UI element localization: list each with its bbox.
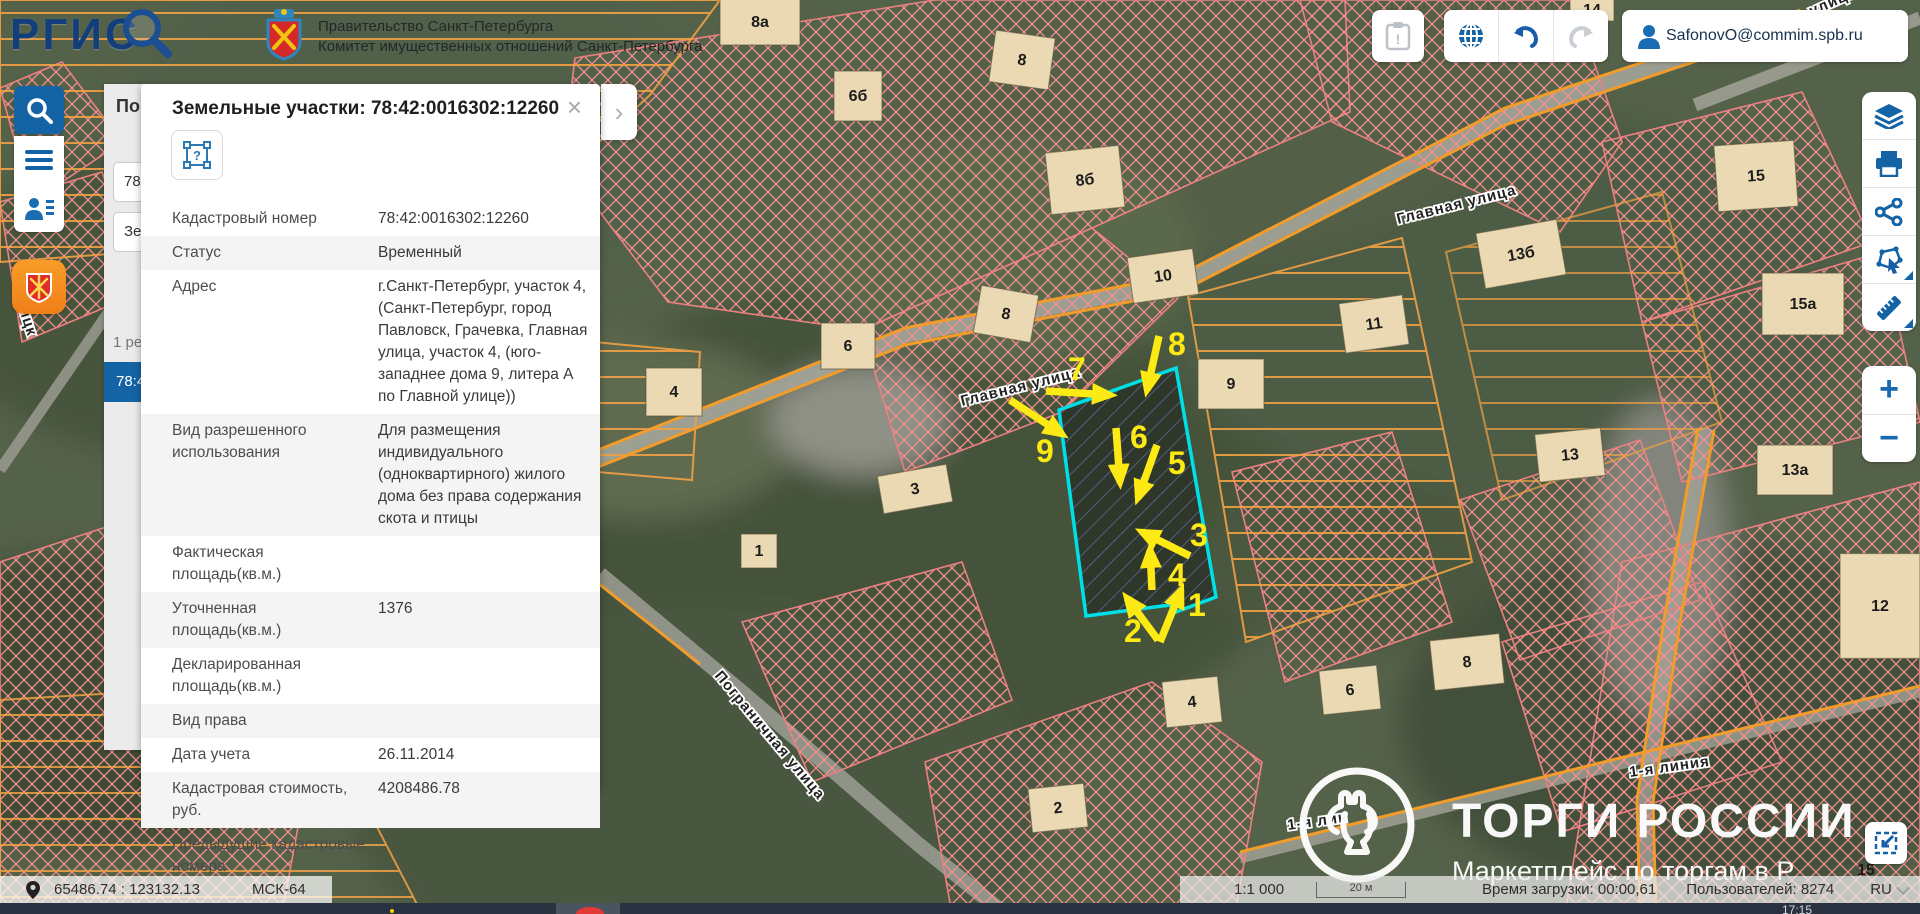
vertex-number-label: 5 — [1168, 445, 1186, 481]
vertex-arrow — [1046, 391, 1110, 395]
search-result-row[interactable]: 78:4 — [104, 362, 144, 402]
printer-icon — [1875, 151, 1903, 177]
language-selector[interactable]: RU — [1870, 881, 1908, 898]
info-row: Кадастровый номер78:42:0016302:12260 — [141, 202, 600, 236]
info-row-label: Декларированная площадь(кв.м.) — [172, 654, 378, 698]
building-number-label: 13а — [1782, 462, 1809, 479]
info-row-value — [378, 542, 590, 586]
info-row: Фактическая площадь(кв.м.) — [141, 536, 600, 592]
vertex-number-label: 2 — [1124, 613, 1142, 649]
undo-arrow-icon — [1511, 23, 1541, 49]
info-row-value: г.Санкт-Петербург, участок 4, (Санкт-Пет… — [378, 276, 590, 408]
info-row-value: 1376 — [378, 598, 590, 642]
search-results-count: 1 ре — [113, 334, 142, 351]
identify-parcel-icon: ? — [183, 141, 211, 169]
zoom-out-button[interactable]: − — [1862, 414, 1916, 463]
zoom-in-button[interactable]: + — [1862, 366, 1916, 414]
spb-emblem-icon — [24, 270, 54, 304]
vertex-number-label: 1 — [1188, 587, 1206, 623]
search-tool-button[interactable] — [14, 86, 64, 134]
info-row-label: Вид разрешенного использования — [172, 420, 378, 530]
info-row: Дата учета26.11.2014 — [141, 738, 600, 772]
torgi-rossii-watermark: ТОРГИ РОССИИ Маркетплейс по торгам в Р — [1294, 762, 1420, 893]
info-row: Адресг.Санкт-Петербург, участок 4, (Санк… — [141, 270, 600, 414]
spb-emblem-button[interactable] — [12, 260, 66, 314]
location-pin-icon — [26, 881, 40, 899]
government-caption: Правительство Санкт-Петербурга Комитет и… — [318, 17, 703, 57]
vertex-number-label: 3 — [1190, 517, 1208, 553]
layers-button[interactable] — [1862, 92, 1916, 139]
info-row: Уточненная площадь(кв.м.)1376 — [141, 592, 600, 648]
os-taskbar: 17:15 — [0, 903, 1920, 914]
vertex-number-label: 4 — [1168, 557, 1186, 593]
building: 15а — [1762, 273, 1844, 335]
building-number-label: 15 — [1747, 167, 1766, 185]
print-button[interactable] — [1862, 139, 1916, 187]
hamburger-icon — [25, 150, 53, 170]
close-icon[interactable]: × — [567, 92, 582, 123]
parcel-attributes-table: Кадастровый номер78:42:0016302:12260Стат… — [141, 202, 600, 884]
globe-icon — [1456, 21, 1486, 51]
panel-header: Земельные участки: 78:42:0016302:12260 × — [141, 84, 600, 130]
building-number-label: 8а — [751, 14, 769, 31]
info-row: СтатусВременный — [141, 236, 600, 270]
load-time: Время загрузки: 00:00,61 — [1482, 881, 1656, 898]
building-number-label: 1 — [755, 543, 764, 560]
building: 11 — [1339, 295, 1409, 353]
vertex-number-label: 9 — [1036, 433, 1054, 469]
info-row-label: Предыдущие кадастровые номера — [172, 834, 378, 878]
building-number-label: 6 — [1345, 682, 1356, 700]
building-number-label: 4 — [670, 384, 679, 401]
building-number-label: 11 — [1365, 315, 1384, 334]
polygon-select-icon — [1874, 246, 1904, 274]
gov-line2: Комитет имущественных отношений Санкт-Пе… — [318, 37, 703, 57]
menu-button[interactable] — [14, 136, 64, 184]
layers-icon — [1874, 103, 1904, 129]
browser-icon — [576, 907, 604, 914]
building: 12 — [1840, 554, 1920, 659]
spb-coat-of-arms — [262, 8, 306, 62]
contacts-button[interactable] — [14, 184, 64, 232]
vertex-arrow — [1150, 550, 1152, 590]
building-number-label: 6 — [844, 338, 853, 355]
parcel-info-panel: Земельные участки: 78:42:0016302:12260 ×… — [141, 84, 600, 790]
taskbar-clock: 17:15 — [1782, 903, 1812, 914]
info-row-value: 26.11.2014 — [378, 744, 590, 766]
info-row-value: 78:42:0016302:12260 — [378, 208, 590, 230]
vertex-number-label: 8 — [1168, 326, 1186, 362]
info-row-label: Статус — [172, 242, 378, 264]
info-row-value — [378, 654, 590, 698]
submenu-triangle — [1904, 271, 1913, 280]
panel-title: Земельные участки: 78:42:0016302:12260 — [172, 98, 559, 120]
building: 9 — [1198, 359, 1264, 409]
globe-button[interactable] — [1444, 10, 1498, 62]
building: 10 — [1127, 249, 1199, 304]
building-number-label: 13 — [1560, 446, 1580, 465]
chevron-down-icon — [1896, 880, 1910, 894]
measure-button[interactable] — [1862, 283, 1916, 331]
building-number-label: 2 — [1053, 800, 1064, 818]
undo-button[interactable] — [1498, 10, 1553, 62]
building: 15 — [1714, 140, 1798, 211]
info-row-value — [378, 710, 590, 732]
info-row-value: Временный — [378, 242, 590, 264]
app-window: 8а86б8б108649311113б1515а1313а1286421415… — [0, 0, 1920, 914]
watermark-title: ТОРГИ РОССИИ — [1452, 794, 1856, 849]
vertex-number-label: 7 — [1068, 351, 1086, 387]
building-number-label: 9 — [1227, 376, 1236, 393]
info-row-value: 4208486.78 — [378, 778, 590, 822]
user-email: SafonovO@commim.spb.ru — [1666, 27, 1863, 45]
building-number-label: 6б — [849, 88, 868, 105]
clipboard-icon: ! — [1385, 21, 1411, 51]
vertex-number-label: 6 — [1130, 419, 1148, 455]
full-extent-button[interactable] — [1865, 822, 1907, 864]
building: 4 — [1162, 676, 1223, 728]
building: 6б — [834, 71, 882, 121]
building: 8б — [1045, 145, 1125, 214]
building: 8 — [1430, 633, 1505, 690]
layer-select-input[interactable]: Зе — [113, 212, 144, 252]
identify-tool-button[interactable]: ? — [171, 130, 223, 180]
share-icon — [1875, 198, 1903, 226]
map-tools-group — [1862, 92, 1916, 331]
building-number-label: 15а — [1790, 296, 1817, 313]
expand-arrow-icon — [1874, 831, 1898, 855]
info-row-label: Кадастровая стоимость, руб. — [172, 778, 378, 822]
vertex-arrow — [1116, 428, 1120, 482]
building: 4 — [646, 368, 702, 416]
svg-text:!: ! — [1396, 31, 1401, 47]
info-row-label: Дата учета — [172, 744, 378, 766]
info-row-label: Фактическая площадь(кв.м.) — [172, 542, 378, 586]
zoom-controls: + − — [1862, 366, 1916, 462]
watermark-emblem-icon — [1294, 762, 1420, 888]
panel-collapse-tab[interactable]: › — [601, 84, 637, 140]
search-panel: Поиск 78: Зе 1 ре 78:4 — [104, 84, 144, 750]
user-icon — [1636, 23, 1662, 49]
share-button[interactable] — [1862, 187, 1916, 235]
clipboard-report-button[interactable]: ! — [1372, 10, 1424, 62]
building-number-label: 4 — [1187, 694, 1198, 712]
info-row: Вид права — [141, 704, 600, 738]
info-row-label: Адрес — [172, 276, 378, 408]
info-row: Кадастровая стоимость, руб.4208486.78 — [141, 772, 600, 828]
select-by-polygon-button[interactable] — [1862, 235, 1916, 283]
language-code: RU — [1870, 881, 1892, 898]
taskbar-notification-dot — [390, 909, 394, 913]
info-row-label: Вид права — [172, 710, 378, 732]
info-row: Декларированная площадь(кв.м.) — [141, 648, 600, 704]
info-row: Предыдущие кадастровые номера — [141, 828, 600, 884]
building: 6 — [1319, 665, 1381, 715]
search-icon — [25, 96, 53, 124]
info-row-label: Кадастровый номер — [172, 208, 378, 230]
nav-button-group — [1444, 10, 1608, 62]
left-tool-group — [14, 136, 64, 232]
info-row-label: Уточненная площадь(кв.м.) — [172, 598, 378, 642]
rgis-magnifier-icon — [118, 4, 174, 60]
building-number-label: 8 — [1462, 654, 1473, 672]
redo-button[interactable] — [1553, 10, 1608, 62]
building: 1 — [741, 534, 777, 568]
users-online: Пользователей: 8274 — [1686, 881, 1834, 898]
svg-text:?: ? — [193, 148, 201, 163]
info-row-value: Для размещения индивидуального (одноквар… — [378, 420, 590, 530]
building-number-label: 10 — [1153, 267, 1173, 286]
user-account-button[interactable]: SafonovO@commim.spb.ru — [1622, 10, 1908, 62]
ruler-icon — [1874, 293, 1904, 323]
info-row-value — [378, 834, 590, 878]
chevron-right-icon: › — [615, 97, 624, 128]
search-panel-title: Поиск — [116, 96, 144, 117]
info-row: Вид разрешенного использованияДля размещ… — [141, 414, 600, 536]
building-number-label: 12 — [1871, 598, 1889, 615]
gov-line1: Правительство Санкт-Петербурга — [318, 17, 703, 37]
building: 8 — [973, 285, 1038, 342]
cadastral-number-input[interactable]: 78: — [113, 162, 144, 202]
status-bar: 1:1 000 20 м Время загрузки: 00:00,61 По… — [1180, 876, 1920, 903]
redo-arrow-icon — [1566, 23, 1596, 49]
user-list-icon — [24, 196, 54, 220]
building-number-label: 8б — [1075, 171, 1096, 190]
building: 8 — [989, 30, 1056, 90]
submenu-triangle — [1904, 319, 1913, 328]
building: 6 — [821, 323, 875, 369]
scale-bar: 20 м — [1316, 882, 1406, 898]
building: 8а — [720, 0, 800, 45]
map-scale: 1:1 000 — [1234, 881, 1284, 898]
building: 13 — [1535, 428, 1606, 483]
building: 2 — [1028, 783, 1088, 833]
building: 13а — [1757, 445, 1833, 495]
